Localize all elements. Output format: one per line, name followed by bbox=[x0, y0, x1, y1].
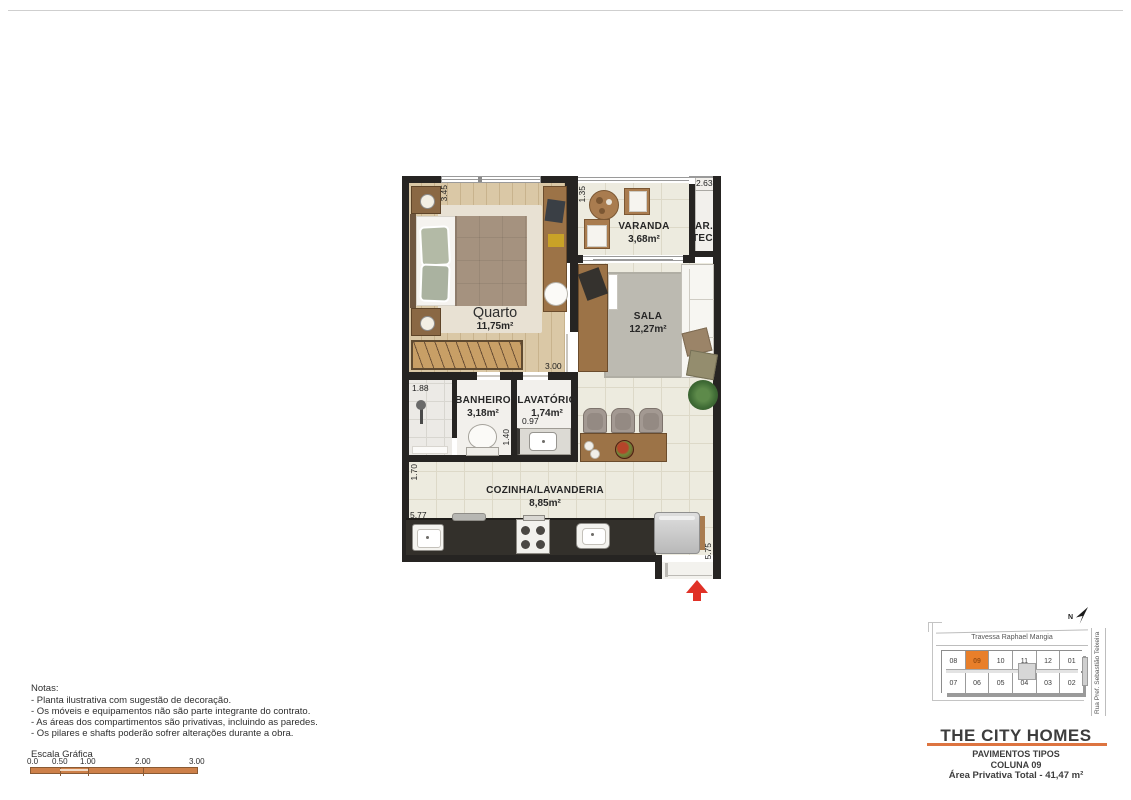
entry-step-wall bbox=[655, 555, 662, 579]
dim-quarto-bottom: 3.00 bbox=[545, 362, 562, 371]
north-label: N bbox=[1068, 614, 1073, 621]
wall-banheiro-bottom bbox=[402, 455, 517, 462]
entrance-arrow-icon bbox=[686, 580, 708, 602]
dim-banheiro-width: 1.88 bbox=[412, 384, 429, 393]
project-title: THE CITY HOMES bbox=[940, 727, 1091, 744]
scale-tick-label: 0.50 bbox=[52, 758, 68, 766]
quarto-window bbox=[441, 176, 541, 183]
title-line-1: PAVIMENTOS TIPOS bbox=[972, 750, 1060, 759]
keyplan-row-bottom: 07 06 05 04 03 02 bbox=[942, 673, 1083, 693]
dim-artec-line bbox=[695, 190, 713, 191]
room-area-banheiro: 3,18m² bbox=[467, 409, 499, 419]
title-line-2: COLUNA 09 bbox=[991, 761, 1042, 770]
wall-quarto-bottom-a bbox=[402, 372, 477, 380]
keyplan-unit-06: 06 bbox=[966, 673, 990, 693]
stove bbox=[516, 519, 550, 554]
vanity-sink bbox=[529, 432, 557, 451]
scale-tick-label: 1.00 bbox=[80, 758, 96, 766]
room-label-quarto: Quarto bbox=[473, 306, 517, 321]
bed-pillow bbox=[419, 263, 450, 302]
plant bbox=[688, 380, 718, 410]
title-accent-rule bbox=[927, 743, 1107, 746]
keyplan-unit-10: 10 bbox=[989, 651, 1013, 671]
wall-lavatorio-bottom bbox=[511, 455, 578, 462]
keyplan-core bbox=[1018, 663, 1036, 680]
keyplan-unit-07: 07 bbox=[942, 673, 966, 693]
dim-varanda-side: 1.35 bbox=[578, 186, 587, 203]
room-label-artec-2: TEC. bbox=[692, 234, 716, 244]
desk-chair bbox=[544, 282, 568, 306]
varanda-railing bbox=[578, 177, 689, 181]
scale-tick-label: 3.00 bbox=[189, 758, 205, 766]
wall-bottom bbox=[402, 555, 662, 562]
dim-artec-width: 2.63 bbox=[696, 179, 713, 188]
bed-pillow bbox=[419, 225, 451, 267]
room-label-cozinha: COZINHA/LAVANDERIA bbox=[486, 486, 604, 496]
sliding-door bbox=[583, 256, 683, 261]
parcel-line bbox=[928, 622, 942, 623]
banheiro-door-mark bbox=[477, 375, 500, 377]
laundry-sink bbox=[412, 524, 444, 551]
street-right-line bbox=[1105, 628, 1106, 716]
varanda-sala-stub-left bbox=[565, 255, 583, 263]
room-label-varanda: VARANDA bbox=[618, 222, 669, 232]
note-item: - Os móveis e equipamentos não são parte… bbox=[31, 707, 310, 717]
plate bbox=[590, 449, 600, 459]
keyplan-unit-09: 09 bbox=[966, 651, 990, 671]
room-area-varanda: 3,68m² bbox=[628, 235, 660, 245]
sofa-pillow bbox=[686, 350, 718, 380]
street-top-label: Travessa Raphael Mangia bbox=[971, 634, 1052, 641]
keyplan-unit-03: 03 bbox=[1037, 673, 1061, 693]
dining-chair bbox=[611, 408, 635, 433]
wall-quarto-bottom-b bbox=[500, 372, 523, 380]
artec-bottom-wall bbox=[689, 251, 721, 257]
parcel-line bbox=[928, 622, 929, 632]
room-label-lavatorio: LAVATÓRIO bbox=[517, 396, 576, 406]
shower-head bbox=[416, 400, 426, 410]
note-item: - Planta ilustrativa com sugestão de dec… bbox=[31, 696, 231, 706]
keyplan-unit-02: 02 bbox=[1060, 673, 1083, 693]
armchair bbox=[584, 219, 610, 249]
shower-divider bbox=[452, 380, 457, 438]
scale-tick-label: 2.00 bbox=[135, 758, 151, 766]
keyplan-row-top: 08 09 10 11 12 01 bbox=[942, 651, 1083, 671]
room-area-sala: 12,27m² bbox=[629, 325, 666, 335]
dim-entry-side: 5.75 bbox=[704, 543, 713, 560]
room-area-cozinha: 8,85m² bbox=[529, 499, 561, 509]
desk-item bbox=[548, 234, 564, 247]
parcel-line bbox=[932, 700, 1084, 701]
wall-quarto-bottom-c bbox=[548, 372, 578, 380]
title-line-3: Área Privativa Total - 41,47 m² bbox=[949, 771, 1083, 781]
shelf-strip bbox=[608, 274, 618, 310]
armchair bbox=[624, 188, 650, 215]
page: Quarto 11,75m² VARANDA 3,68m² AR. TEC. S… bbox=[0, 0, 1131, 800]
toilet-tank bbox=[466, 447, 499, 456]
note-item: - Os pilares e shafts poderão sofrer alt… bbox=[31, 729, 293, 739]
keyplan-unit-12: 12 bbox=[1037, 651, 1061, 671]
room-area-quarto: 11,75m² bbox=[477, 322, 514, 332]
street-top-line bbox=[936, 645, 1088, 646]
nightstand bbox=[411, 186, 441, 214]
bed-duvet bbox=[455, 216, 527, 306]
note-item: - As áreas dos compartimentos são privat… bbox=[31, 718, 318, 728]
fridge bbox=[654, 512, 700, 554]
dining-chair bbox=[583, 408, 607, 433]
fruit-bowl bbox=[615, 440, 634, 459]
scale-bar bbox=[30, 767, 198, 774]
nightstand bbox=[411, 308, 441, 336]
laptop bbox=[545, 199, 566, 223]
counter-shelf bbox=[452, 513, 486, 521]
dim-lavatorio-opening: 0.97 bbox=[522, 417, 539, 426]
notes-title: Notas: bbox=[31, 684, 58, 694]
wardrobe bbox=[411, 340, 523, 370]
kitchen-sink bbox=[576, 523, 610, 549]
scale-tick-label: 0.0 bbox=[27, 758, 38, 766]
room-label-sala: SALA bbox=[634, 312, 662, 322]
dim-cozinha-side: 1.70 bbox=[410, 464, 419, 481]
entry-door-line bbox=[668, 575, 712, 576]
dim-banheiro-depth: 1.40 bbox=[502, 429, 511, 446]
parcel-line bbox=[932, 622, 933, 700]
dim-cozinha-width: 5.77 bbox=[410, 511, 427, 520]
street-right-label: Rua Pref. Sebastião Teixeira bbox=[1092, 632, 1104, 714]
keyplan-unit-05: 05 bbox=[989, 673, 1013, 693]
wall-quarto-sala bbox=[570, 263, 578, 332]
room-label-banheiro: BANHEIRO bbox=[455, 396, 511, 406]
keyplan-entry-bump bbox=[1082, 657, 1088, 686]
lavatorio-door-mark bbox=[523, 375, 548, 377]
bath-mat bbox=[412, 446, 448, 454]
toilet bbox=[468, 424, 497, 449]
dim-quarto-side: 3.45 bbox=[440, 185, 449, 202]
dining-chair bbox=[639, 408, 663, 433]
keyplan-unit-01: 01 bbox=[1060, 651, 1083, 671]
keyplan-unit-08: 08 bbox=[942, 651, 966, 671]
quarto-door-leaf bbox=[566, 334, 568, 372]
wall-lavatorio-sala bbox=[571, 380, 578, 462]
wall-left bbox=[402, 176, 409, 562]
entry-floor bbox=[662, 562, 713, 579]
room-label-artec-1: AR. bbox=[695, 222, 713, 232]
round-table bbox=[589, 190, 619, 220]
